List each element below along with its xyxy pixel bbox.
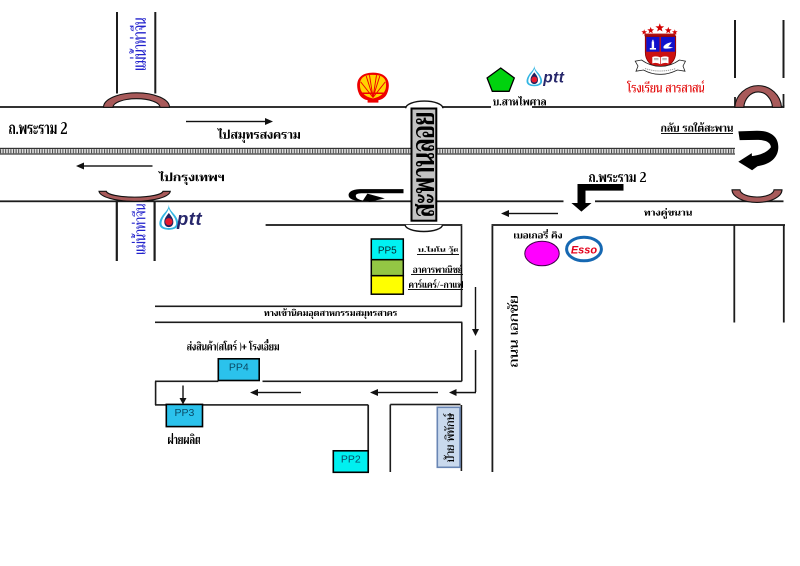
svg-text:PP3: PP3 bbox=[174, 407, 194, 419]
svg-text:ptt: ptt bbox=[542, 69, 564, 86]
svg-text:PP5: PP5 bbox=[378, 246, 397, 257]
svg-text:Esso: Esso bbox=[571, 245, 598, 257]
svg-text:ptt: ptt bbox=[176, 208, 202, 229]
svg-text:PP4: PP4 bbox=[229, 361, 249, 373]
svg-text:PP2: PP2 bbox=[341, 453, 361, 465]
